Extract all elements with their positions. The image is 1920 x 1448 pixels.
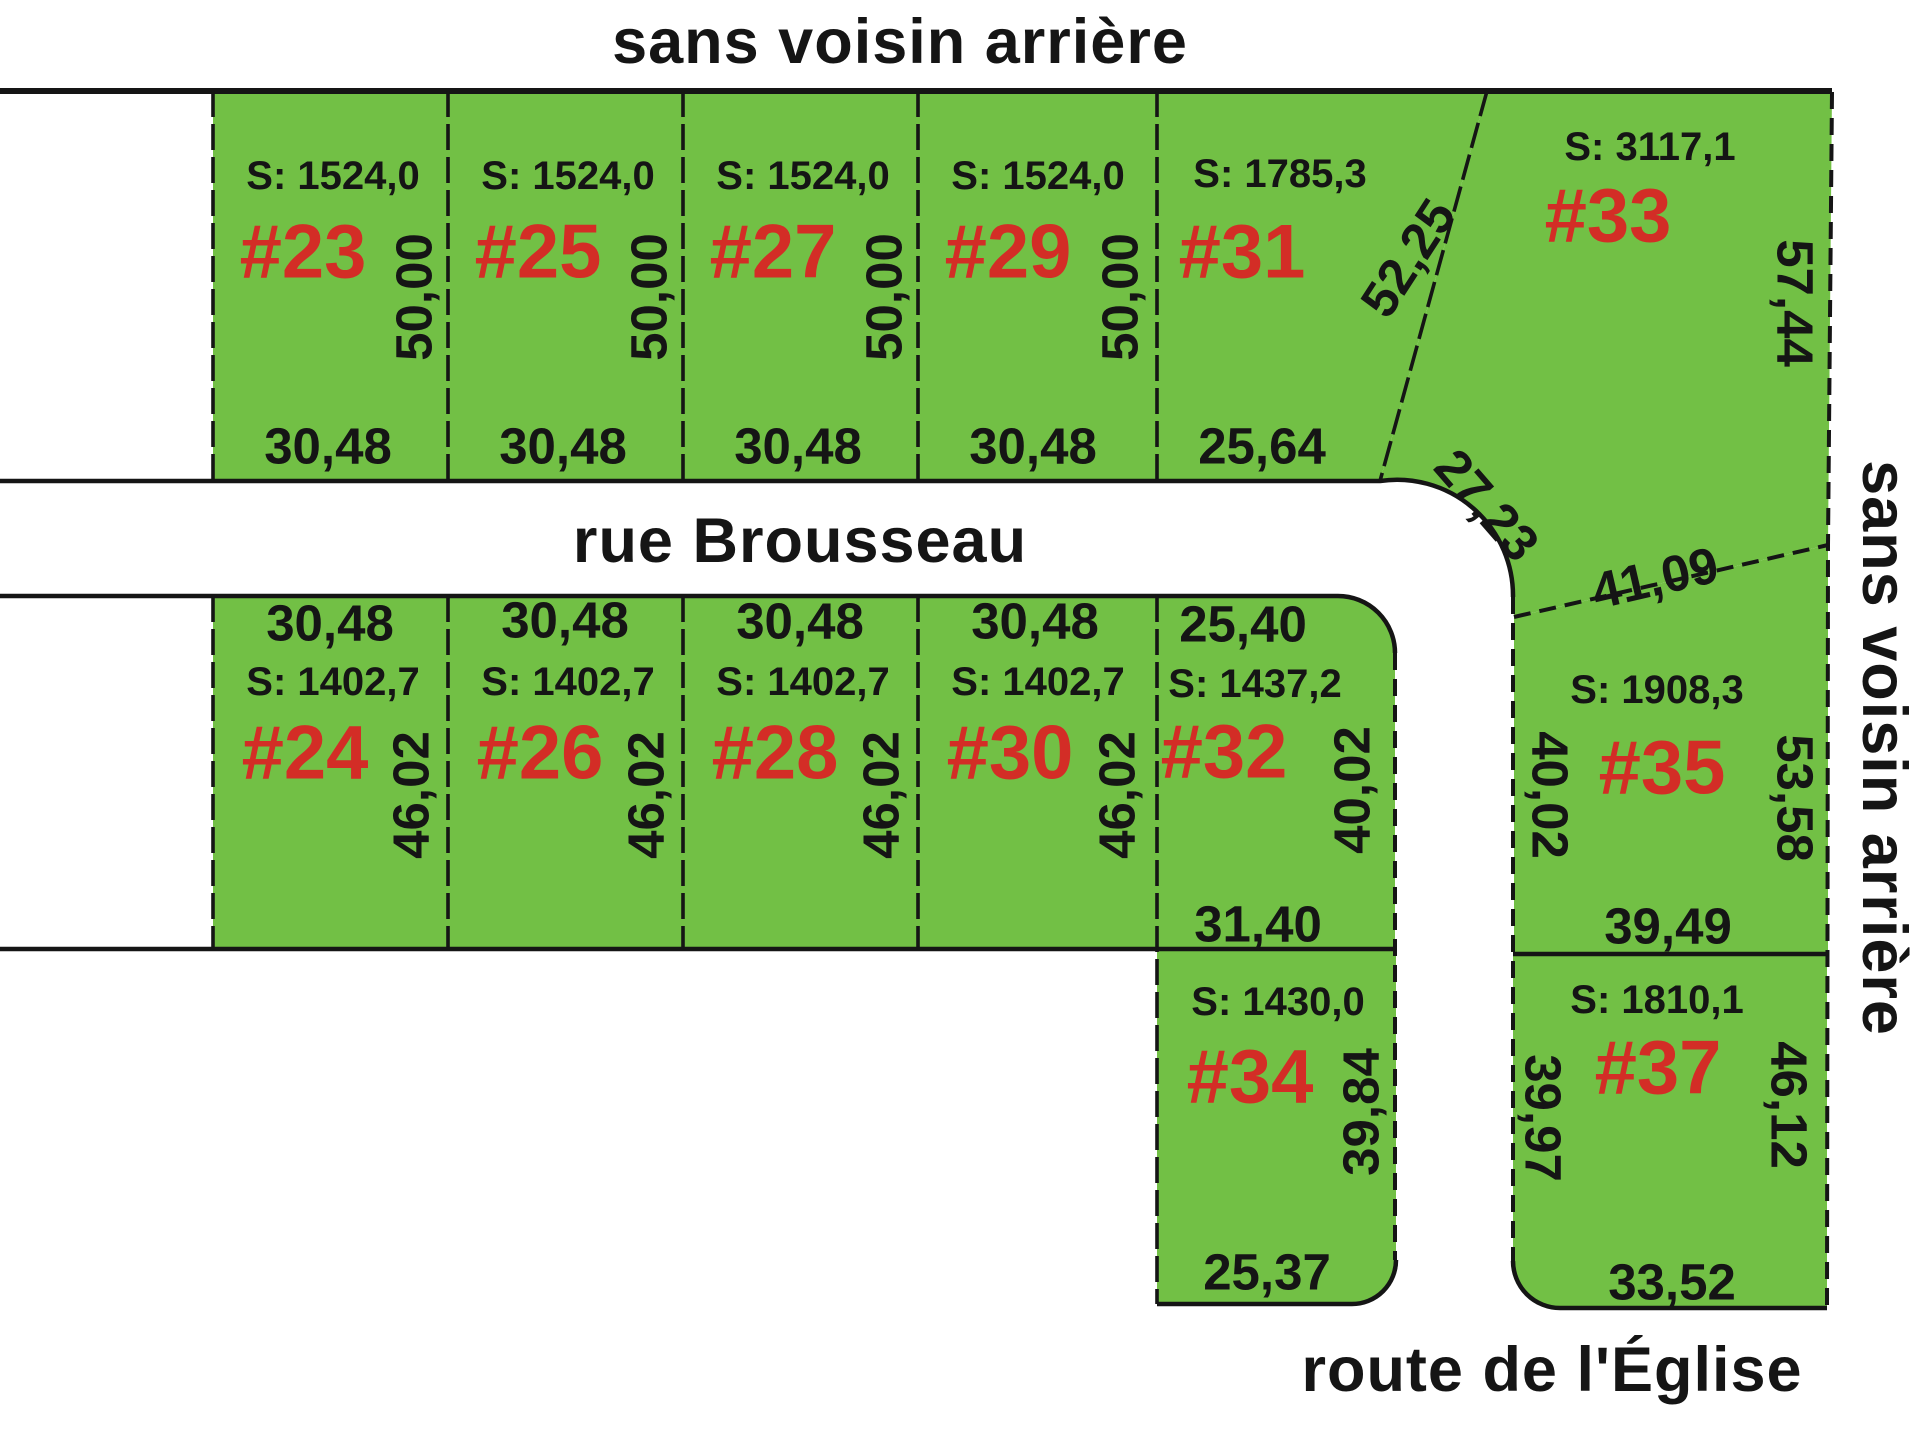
lot-25-surface: S: 1524,0	[481, 154, 654, 198]
lot-30-number: #30	[947, 711, 1074, 796]
lot-24-depth: 46,02	[383, 731, 440, 859]
right-title: sans voisin arrière	[1849, 460, 1919, 1036]
subdivision-plan-page: sans voisin arrière sans voisin arrière …	[0, 0, 1920, 1448]
lot-35-number: #35	[1599, 726, 1726, 811]
lot-32-surface: S: 1437,2	[1168, 662, 1341, 706]
lot-35-west-dim: 40,02	[1522, 731, 1579, 859]
lot-25-frontage: 30,48	[499, 418, 627, 475]
lot-30-depth: 46,02	[1089, 731, 1146, 859]
lot-33-surface: S: 3117,1	[1564, 125, 1735, 169]
lot-30-frontage: 30,48	[971, 593, 1099, 650]
lot-30-surface: S: 1402,7	[951, 660, 1124, 704]
lot-29-depth: 50,00	[1092, 233, 1149, 361]
street-name-brousseau: rue Brousseau	[573, 506, 1027, 576]
lot-23-surface: S: 1524,0	[246, 154, 419, 198]
street-name-eglise: route de l'Église	[1301, 1335, 1802, 1405]
lot-32-rear-dim: 31,40	[1194, 896, 1322, 953]
lot-31-frontage: 25,64	[1198, 418, 1326, 475]
lot-34-surface: S: 1430,0	[1191, 980, 1364, 1024]
lot-26-surface: S: 1402,7	[481, 660, 654, 704]
lot-35-south-dim: 39,49	[1604, 898, 1732, 955]
lot-37-west-dim: 39,97	[1515, 1054, 1572, 1182]
lot-23-depth: 50,00	[386, 233, 443, 361]
top-title: sans voisin arrière	[612, 7, 1188, 77]
lot-32-depth: 40,02	[1324, 726, 1381, 854]
lot-33-number: #33	[1545, 174, 1672, 259]
lot-24-frontage: 30,48	[266, 595, 394, 652]
lot-27-depth: 50,00	[856, 233, 913, 361]
subdivision-plan: sans voisin arrière sans voisin arrière …	[0, 0, 1920, 1448]
lot-28-frontage: 30,48	[736, 593, 864, 650]
lot-26-depth: 46,02	[618, 731, 675, 859]
lot-28-depth: 46,02	[853, 731, 910, 859]
lot-27-number: #27	[710, 210, 837, 295]
lot-33-east-dim: 57,44	[1767, 239, 1824, 367]
lot-28-surface: S: 1402,7	[716, 660, 889, 704]
lot-29-frontage: 30,48	[969, 418, 1097, 475]
lot-24-surface: S: 1402,7	[246, 660, 419, 704]
lot-23-frontage: 30,48	[264, 418, 392, 475]
lot-34-number: #34	[1187, 1035, 1314, 1120]
lot-37-number: #37	[1595, 1026, 1722, 1111]
lot-37-south-dim: 33,52	[1608, 1254, 1736, 1311]
lot-29-surface: S: 1524,0	[951, 154, 1124, 198]
lot-31-surface: S: 1785,3	[1193, 152, 1366, 196]
lot-25-depth: 50,00	[621, 233, 678, 361]
lot-29-number: #29	[945, 210, 1072, 295]
lot-34-south-dim: 25,37	[1203, 1244, 1331, 1301]
lot-27-frontage: 30,48	[734, 418, 862, 475]
lot-37-surface: S: 1810,1	[1570, 978, 1743, 1022]
lot-37-east-dim: 46,12	[1761, 1041, 1818, 1169]
lot-23-number: #23	[240, 210, 367, 295]
lot-26-number: #26	[477, 711, 604, 796]
lot-28-number: #28	[712, 711, 839, 796]
lot-24-number: #24	[242, 711, 369, 796]
lot-31-number: #31	[1179, 210, 1306, 295]
lot-27-surface: S: 1524,0	[716, 154, 889, 198]
lot-32-frontage: 25,40	[1179, 596, 1307, 653]
lot-35-surface: S: 1908,3	[1570, 668, 1743, 712]
lot-25-number: #25	[475, 210, 602, 295]
lot-26-frontage: 30,48	[501, 592, 629, 649]
lot-32-number: #32	[1161, 710, 1288, 795]
lot-34-east-dim: 39,84	[1333, 1048, 1390, 1176]
lot-35-east-dim: 53,58	[1767, 734, 1824, 862]
